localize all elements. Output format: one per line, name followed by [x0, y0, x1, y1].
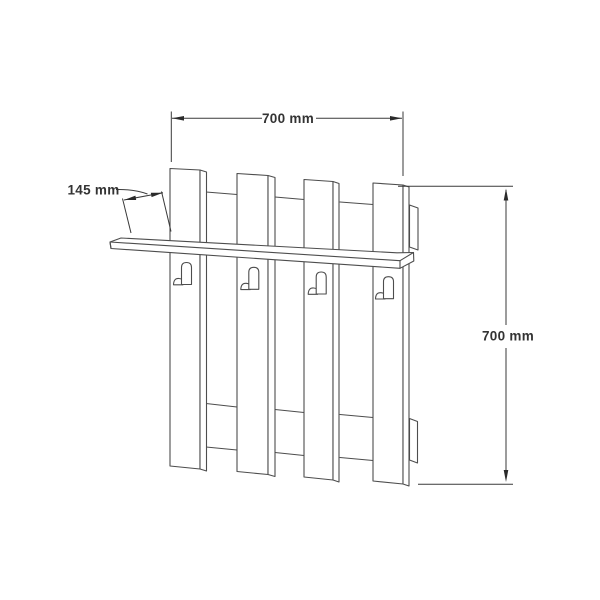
- dimension-depth: 145 mm: [67, 183, 171, 234]
- hook-2-bar: [249, 267, 259, 289]
- upper-rail-end-cap: [410, 205, 419, 250]
- upper-rail-edge-segment: [275, 197, 304, 200]
- plank-1-side-face: [200, 170, 207, 471]
- width-arrow-left-icon: [172, 116, 184, 121]
- depth-leader-line: [116, 189, 148, 194]
- lower-rail-edge-segment: [275, 453, 304, 456]
- width-arrow-right-icon: [390, 116, 402, 121]
- coat-rack-dimension-diagram: 700 mm 700 mm 145 mm: [0, 0, 600, 600]
- height-dimension-label: 700 mm: [482, 329, 534, 344]
- lower-rail-edge-segment: [340, 415, 373, 418]
- plank-2-front-face: [237, 174, 268, 475]
- dimension-width: 700 mm: [171, 111, 403, 176]
- lower-rail-edge-segment: [275, 410, 304, 413]
- plank-1: [170, 169, 207, 472]
- plank-3-front-face: [304, 180, 333, 481]
- plank-4: [373, 183, 409, 486]
- lower-rail-end-cap: [410, 419, 418, 464]
- lower-rail-edge-segment: [340, 458, 373, 461]
- hook-4-bar: [384, 277, 394, 299]
- technical-drawing-canvas: 700 mm 700 mm 145 mm: [0, 0, 600, 600]
- plank-2: [237, 174, 275, 477]
- depth-dimension-label: 145 mm: [67, 183, 119, 198]
- plank-1-front-face: [170, 169, 200, 470]
- lower-rail-edge-segment: [206, 447, 237, 450]
- lower-rail-edge-segment: [206, 404, 237, 408]
- plank-3: [304, 180, 339, 483]
- height-arrow-bottom-icon: [504, 470, 509, 482]
- hook-3-bar: [316, 272, 326, 294]
- plank-2-side-face: [268, 176, 275, 477]
- plank-4-side-face: [403, 185, 409, 486]
- depth-arrow-left-icon: [124, 196, 136, 200]
- hook-1-bar: [182, 263, 192, 285]
- plank-3-side-face: [333, 182, 339, 483]
- depth-extension-line-left: [123, 199, 132, 234]
- width-dimension-label: 700 mm: [262, 111, 314, 126]
- upper-rail-edge-segment: [340, 202, 373, 205]
- upper-rail-edge-segment: [206, 192, 237, 195]
- depth-arrow-right-icon: [151, 193, 163, 197]
- plank-4-front-face: [373, 183, 403, 484]
- height-arrow-top-icon: [504, 189, 509, 201]
